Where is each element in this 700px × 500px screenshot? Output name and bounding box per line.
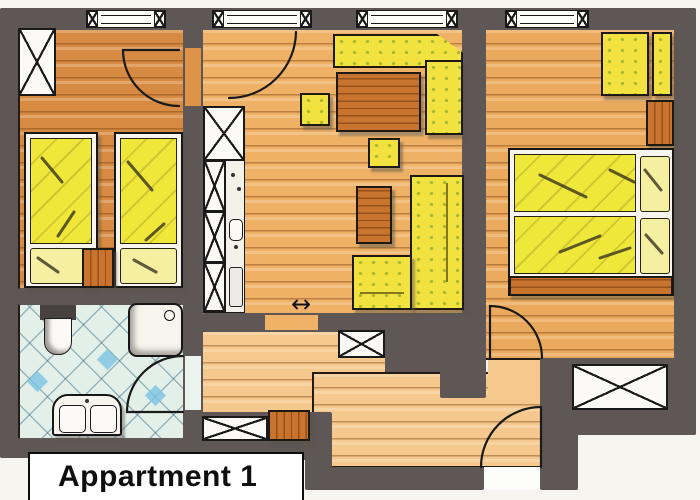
washbasin-right (90, 405, 117, 433)
faucet-icon (85, 399, 89, 403)
single-bed-2 (114, 132, 183, 288)
window-jamb-icon (87, 11, 98, 27)
plan-title-box: Appartment 1 (28, 452, 304, 500)
window-bedroom-left (86, 10, 166, 28)
window-hall-bottom (202, 416, 268, 441)
window-living-1 (212, 10, 312, 28)
dining-table (336, 72, 421, 132)
window-jamb-icon (154, 11, 165, 27)
window-jamb-icon (357, 11, 368, 27)
bed-blanket (514, 216, 636, 274)
bed-pillow (120, 248, 177, 284)
window-jamb-icon (577, 11, 588, 27)
washbasin-left (59, 405, 86, 433)
corner-sofa-long (410, 175, 464, 310)
bed-blanket (120, 138, 177, 244)
kitchen-cabinet-1 (203, 160, 226, 212)
bed-blanket (30, 138, 92, 244)
doorway-living-hall (265, 315, 318, 330)
toilet-bowl (44, 318, 72, 355)
hob-burner-icon (231, 173, 235, 177)
sofa-backrest-line (446, 183, 448, 282)
kitchen-faucet-icon (234, 245, 238, 249)
kitchen-cabinet-top (203, 106, 245, 161)
oven (229, 267, 243, 307)
wall-entrance-right (540, 430, 578, 490)
wardrobe-bedroom-left (18, 28, 56, 96)
toilet (40, 305, 76, 357)
doorway-entrance (484, 467, 540, 490)
window-bedroomR-bottom (572, 364, 668, 410)
wall-left (0, 8, 18, 458)
stool-2 (368, 138, 400, 168)
kitchen-cabinet-2 (203, 211, 226, 263)
window-bedroom-right (505, 10, 589, 28)
shower-tray (128, 303, 183, 357)
kitchenette (203, 106, 245, 313)
wardrobe-hall (338, 330, 385, 358)
plan-title: Appartment 1 (58, 460, 257, 494)
bed-footboard (509, 276, 673, 296)
doorway-bathroom (185, 356, 201, 410)
wall-corner-a (385, 313, 445, 372)
window-jamb-icon (506, 11, 517, 27)
kitchen-cabinet-3 (203, 262, 226, 312)
stool-1 (300, 93, 330, 126)
coffee-table (356, 186, 392, 244)
wall-hall-bottom-b (312, 467, 484, 490)
double-bed (508, 148, 674, 296)
nightstand-bedroom-right (646, 100, 674, 146)
side-table (652, 32, 672, 96)
window-jamb-icon (300, 11, 311, 27)
armchair (601, 32, 649, 96)
doorway-bedroom-right (488, 360, 540, 394)
bed-blanket (514, 154, 636, 212)
window-living-2 (356, 10, 458, 28)
window-jamb-icon (213, 11, 224, 27)
shoe-cabinet-hall (268, 410, 310, 441)
floor-plan: ↔ Appartment 1 (0, 0, 700, 500)
wall-corner-b (440, 313, 486, 398)
kitchen-sink (229, 219, 243, 241)
double-washbasin (52, 394, 122, 436)
hob-burner-icon (237, 187, 241, 191)
bed-pillow (640, 156, 670, 212)
corner-bench-right (425, 60, 463, 135)
bed-pillow (640, 218, 670, 274)
sofa-backrest-line (360, 292, 404, 294)
corner-sofa-short (352, 255, 412, 310)
doorway-bedroom-left (185, 48, 201, 106)
window-jamb-icon (446, 11, 457, 27)
nightstand-bedroom-left (82, 248, 114, 288)
